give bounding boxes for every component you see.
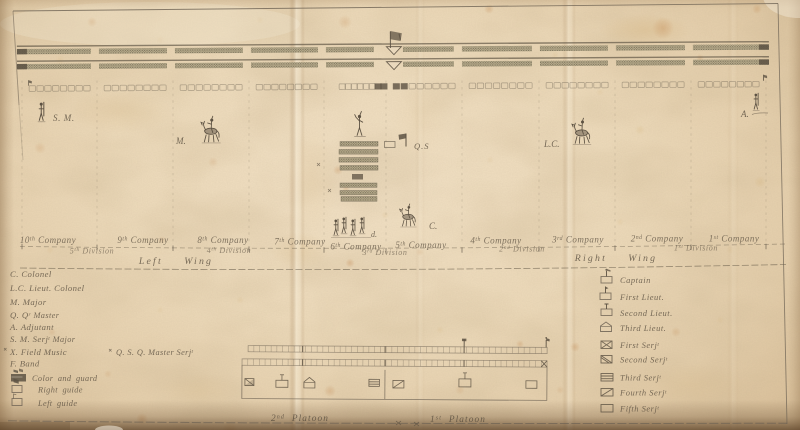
svg-text:A. Adjutant: A. Adjutant — [9, 322, 54, 332]
svg-text:Fifth Serjt: Fifth Serjt — [619, 404, 659, 414]
svg-text:First Lieut.: First Lieut. — [619, 292, 664, 302]
svg-text:C. Colonel: C. Colonel — [10, 269, 52, 279]
svg-text:M. Major: M. Major — [9, 297, 47, 307]
svg-text:Q. S. Q. Master Serjt: Q. S. Q. Master Serjt — [116, 348, 194, 357]
svg-text:M.: M. — [175, 136, 186, 146]
svg-text:10th Company: 10th Company — [20, 235, 76, 245]
svg-text:S. M.: S. M. — [53, 113, 75, 123]
svg-text:Third Lieut.: Third Lieut. — [620, 323, 666, 333]
svg-text:Second Serjt: Second Serjt — [620, 355, 668, 365]
svg-text:L.C. Lieut. Colonel: L.C. Lieut. Colonel — [9, 283, 85, 293]
svg-text:Right guide: Right guide — [37, 386, 83, 395]
svg-text:d.: d. — [371, 230, 377, 239]
svg-text:S. M. Serjt Major: S. M. Serjt Major — [10, 334, 76, 344]
svg-text:X. Field Music: X. Field Music — [9, 347, 67, 357]
svg-text:Q.S: Q.S — [414, 141, 430, 151]
svg-text:First Serjt: First Serjt — [619, 340, 659, 350]
svg-text:Left guide: Left guide — [37, 399, 77, 408]
svg-text:Right Wing: Right Wing — [574, 253, 657, 264]
svg-text:Q. Qr Master: Q. Qr Master — [10, 310, 60, 320]
svg-text:Fourth Serjt: Fourth Serjt — [619, 388, 667, 398]
svg-text:F. Band: F. Band — [9, 359, 40, 369]
svg-text:Left Wing: Left Wing — [138, 256, 213, 267]
svg-text:Third Serjt: Third Serjt — [620, 373, 661, 383]
svg-text:Captain: Captain — [620, 275, 651, 285]
svg-text:C.: C. — [429, 221, 437, 231]
svg-text:A.: A. — [740, 109, 749, 119]
svg-text:Second Lieut.: Second Lieut. — [620, 308, 673, 318]
svg-text:Color and guard: Color and guard — [32, 374, 98, 383]
svg-text:L.C.: L.C. — [543, 139, 560, 149]
